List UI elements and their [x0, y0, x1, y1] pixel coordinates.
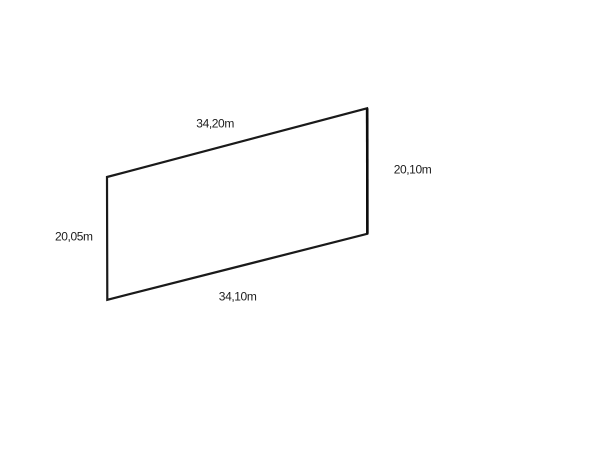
- svg-text:34,20m: 34,20m: [196, 117, 234, 131]
- svg-text:34,10m: 34,10m: [219, 290, 257, 304]
- svg-text:20,10m: 20,10m: [394, 163, 432, 177]
- svg-text:20,05m: 20,05m: [55, 230, 93, 244]
